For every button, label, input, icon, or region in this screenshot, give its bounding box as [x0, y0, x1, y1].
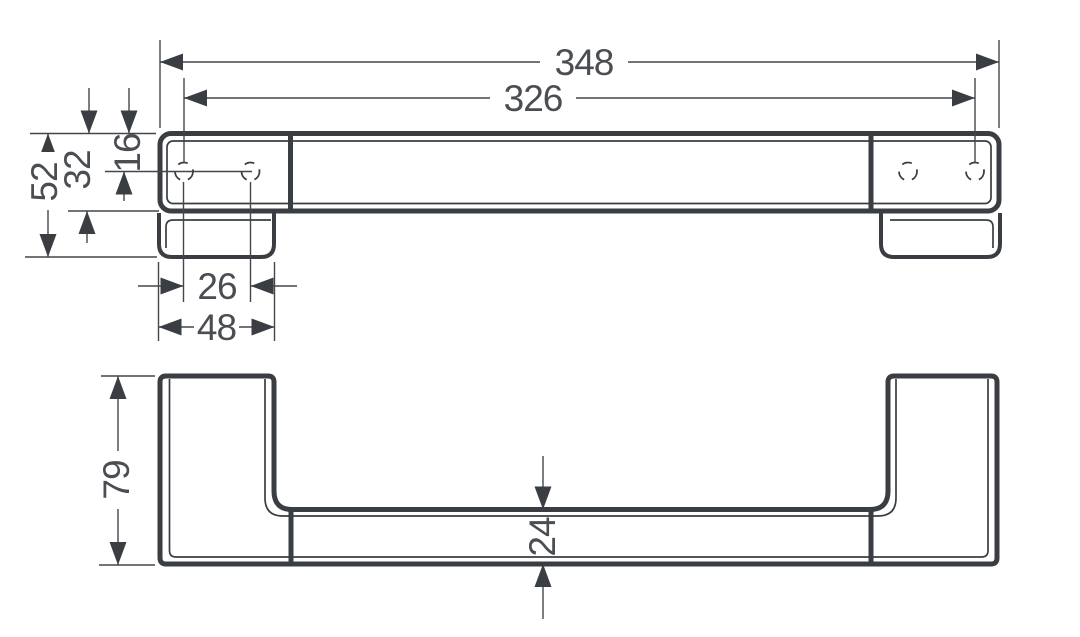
dim-wall-projection: 79 [96, 376, 155, 565]
dim-top-to-hole: 16 [107, 88, 148, 201]
front-left-wall-plate-inner-line [166, 220, 271, 248]
drawing-page: 348 326 52 32 [0, 0, 1080, 637]
front-right-wall-plate-inner-line [890, 220, 993, 248]
dim-label-hole-spacing: 326 [504, 78, 563, 119]
dim-label-top-to-hole: 16 [107, 133, 148, 172]
dim-overall-width: 348 [160, 40, 999, 128]
dim-label-wall-projection: 79 [96, 460, 137, 499]
dim-hole-spacing: 326 [184, 78, 975, 163]
technical-drawing-canvas: 348 326 52 32 [0, 0, 1080, 637]
screw-hole-right-inner [899, 163, 917, 181]
dim-label-bar-face-height: 32 [57, 150, 98, 189]
plan-view [160, 376, 997, 564]
dim-bar-depth: 24 [522, 456, 563, 619]
dim-label-hole-pitch: 26 [197, 266, 236, 307]
screw-hole-right-outer [966, 163, 984, 181]
dim-label-overall-width: 348 [555, 42, 614, 83]
dim-label-plate-width: 48 [197, 307, 236, 348]
dim-label-bar-depth: 24 [522, 517, 563, 557]
front-elevation-view [105, 134, 1000, 258]
plan-inner-line-bar [265, 379, 896, 516]
